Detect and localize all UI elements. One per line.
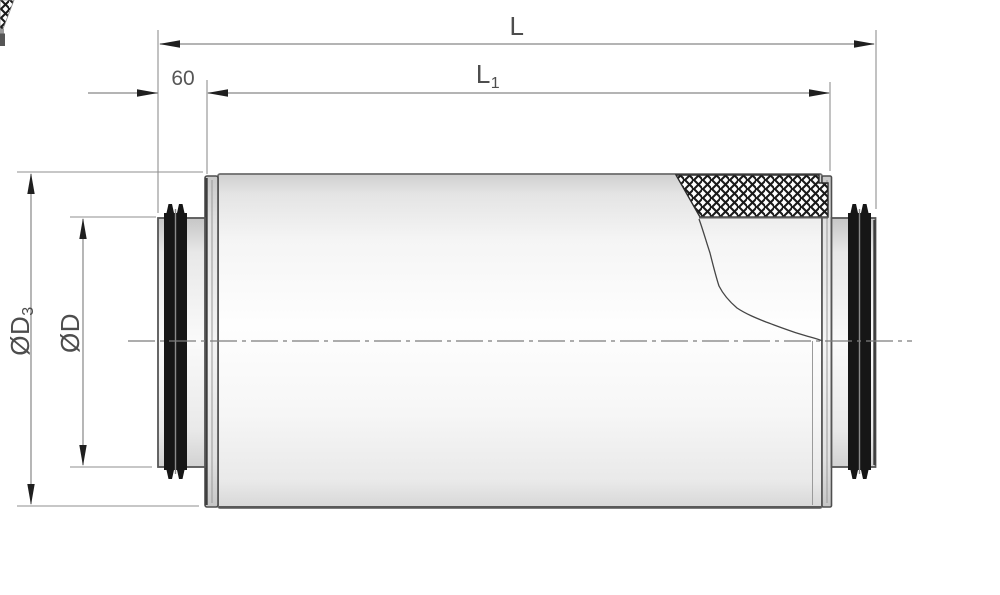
- dim-spigot-diameter: ØD: [55, 218, 87, 466]
- corner-fragment: [0, 0, 14, 46]
- dim-casing-length: L1: [207, 59, 830, 97]
- dim-outer-diameter: ØD3: [5, 173, 37, 505]
- dim-label-D3: ØD3: [5, 306, 37, 355]
- technical-drawing-silencer: L L1 60 ØD3 ØD: [0, 0, 1000, 595]
- dim-overall-length: L: [159, 11, 875, 48]
- dim-label-L1: L1: [476, 59, 500, 92]
- insulation-hatch: [676, 175, 828, 217]
- dim-label-D: ØD: [55, 313, 85, 353]
- dim-label-60: 60: [171, 67, 194, 90]
- drawing-canvas: L L1 60 ØD3 ØD: [0, 0, 1000, 595]
- dim-spigot-depth: 60: [88, 67, 195, 97]
- dim-label-L: L: [510, 11, 525, 41]
